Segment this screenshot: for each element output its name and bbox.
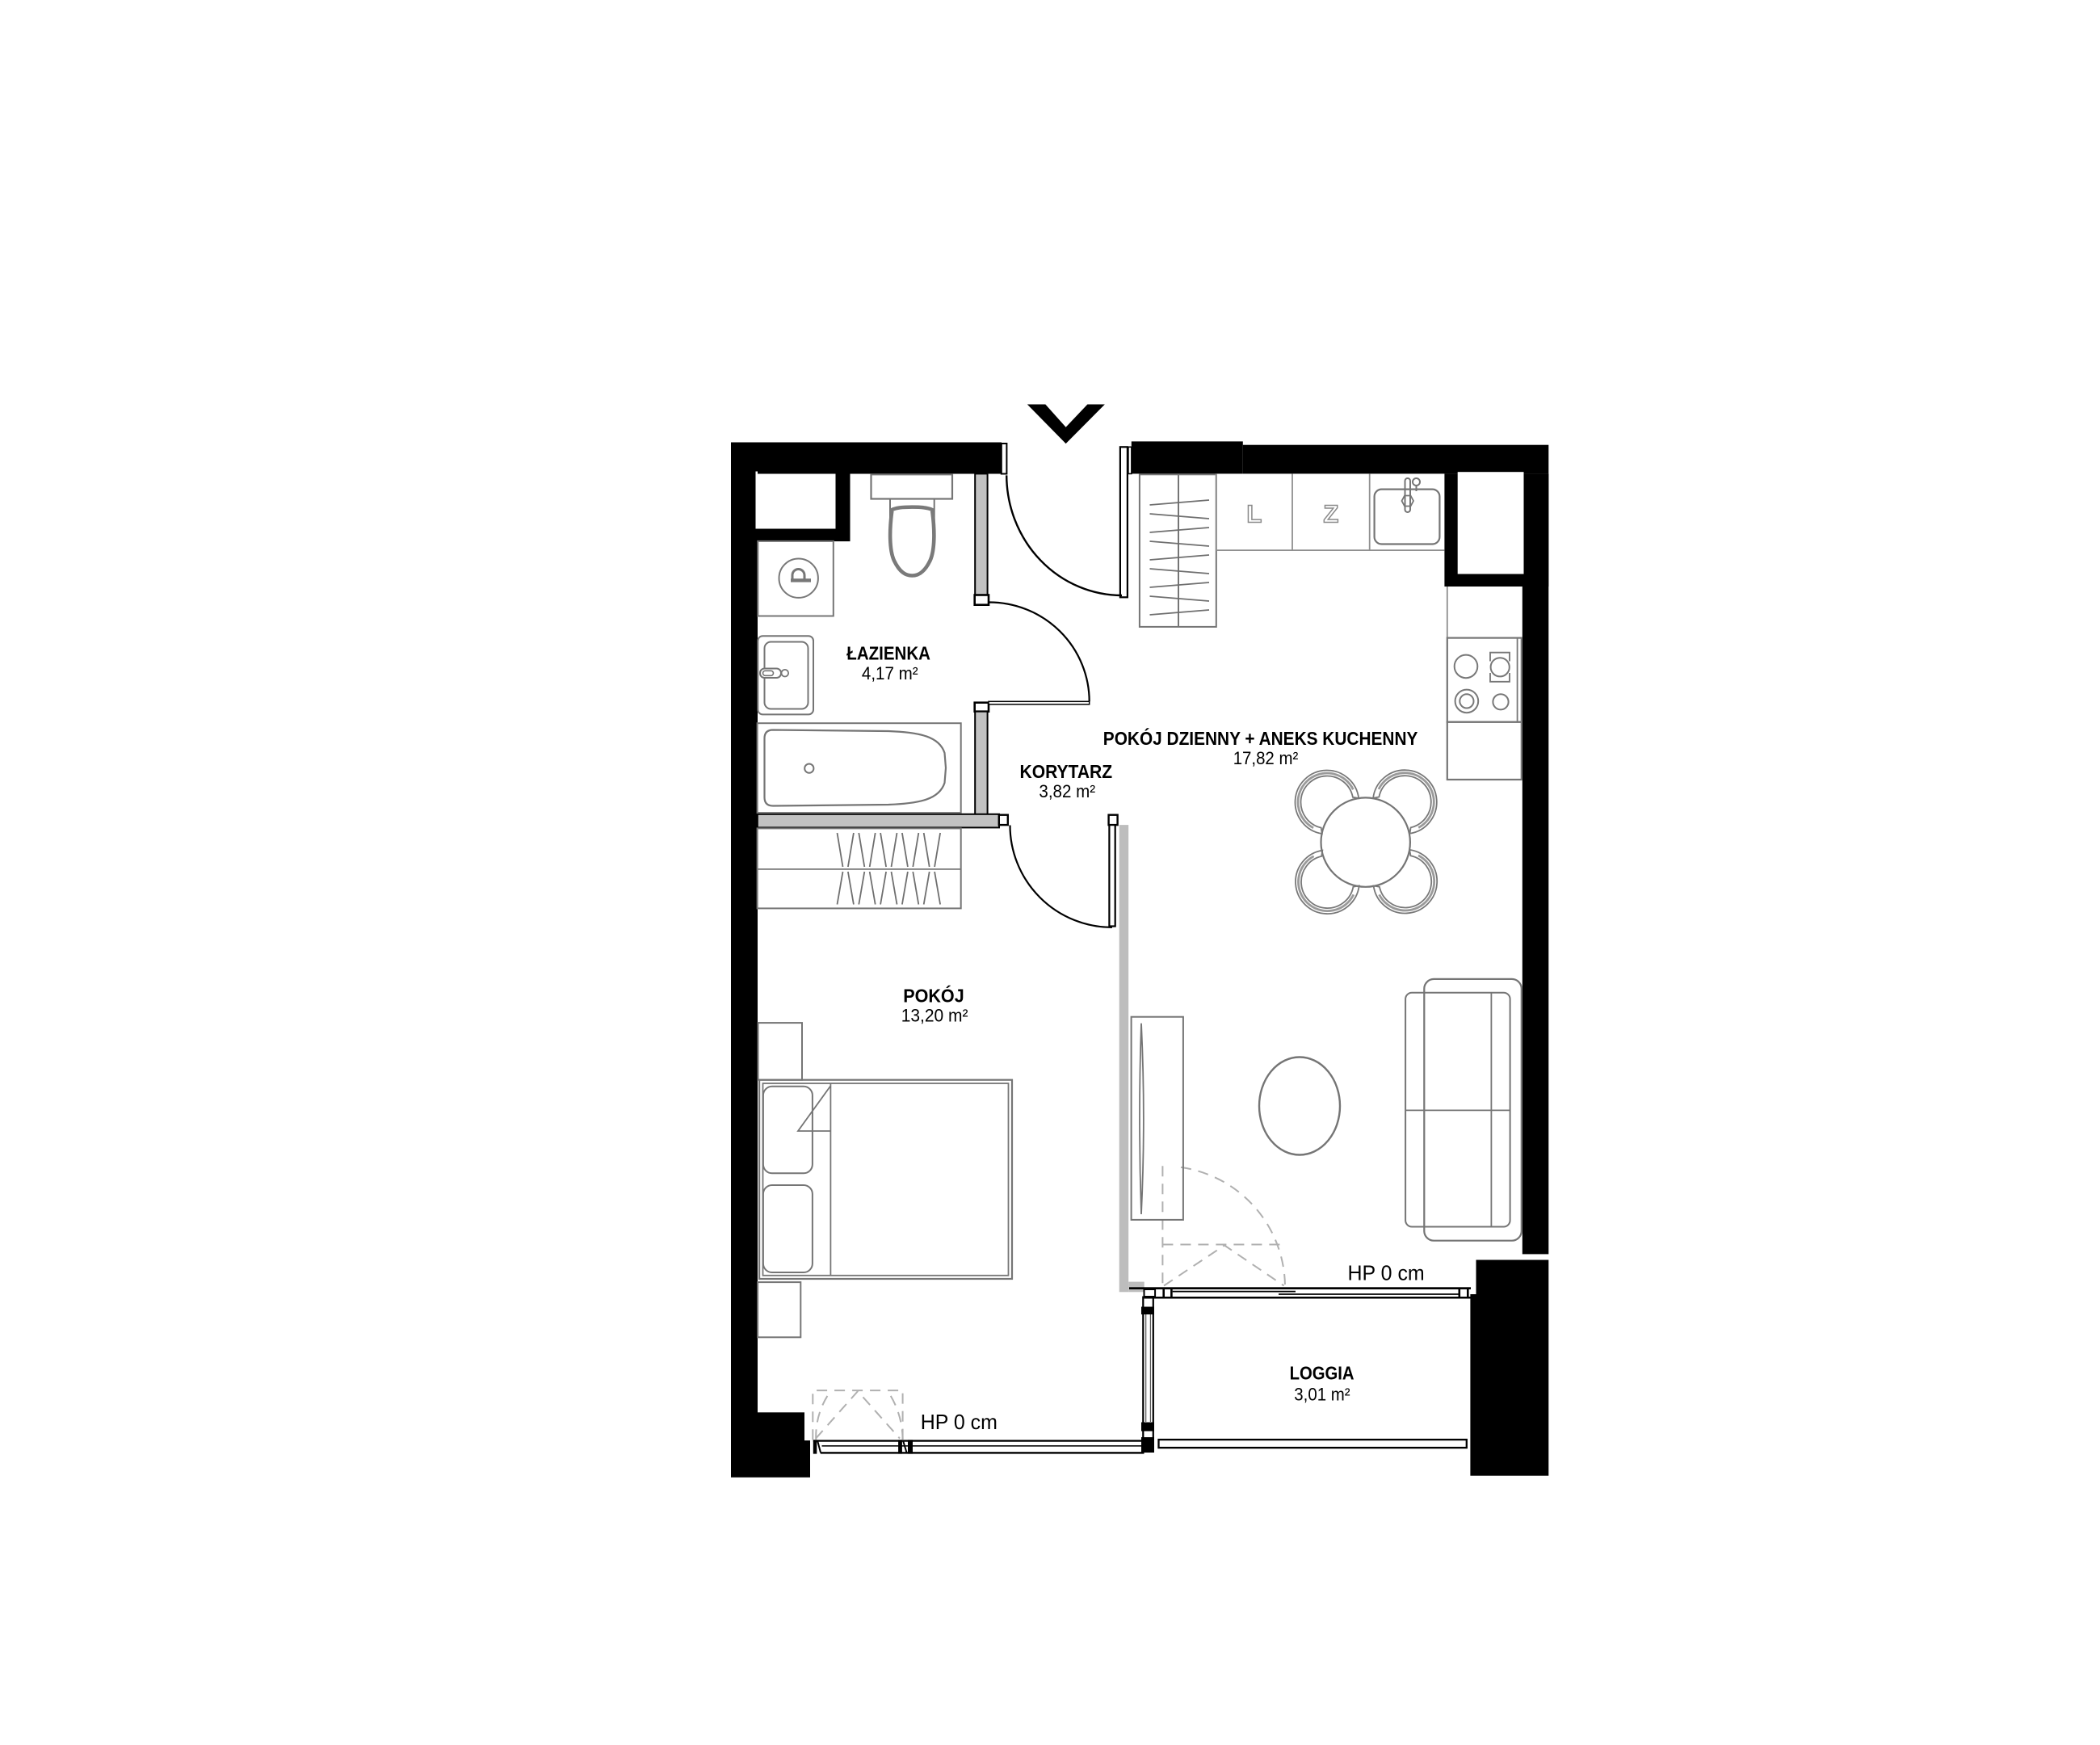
svg-text:HP 0 cm: HP 0 cm [921,1410,997,1434]
svg-text:4,17 m²: 4,17 m² [862,663,918,683]
svg-text:13,20 m²: 13,20 m² [901,1006,968,1026]
svg-text:ŁAZIENKA: ŁAZIENKA [846,643,930,664]
svg-text:Z: Z [1323,499,1338,528]
svg-text:LOGGIA: LOGGIA [1290,1362,1354,1383]
svg-text:POKÓJ DZIENNY + ANEKS KUCHENNY: POKÓJ DZIENNY + ANEKS KUCHENNY [1103,727,1418,749]
svg-text:KORYTARZ: KORYTARZ [1020,761,1113,782]
svg-text:17,82 m²: 17,82 m² [1233,748,1299,768]
svg-text:3,01 m²: 3,01 m² [1294,1384,1350,1404]
svg-text:3,82 m²: 3,82 m² [1039,781,1095,801]
svg-text:HP 0 cm: HP 0 cm [1348,1260,1425,1285]
svg-text:L: L [1246,499,1262,528]
svg-text:POKÓJ: POKÓJ [903,985,964,1007]
